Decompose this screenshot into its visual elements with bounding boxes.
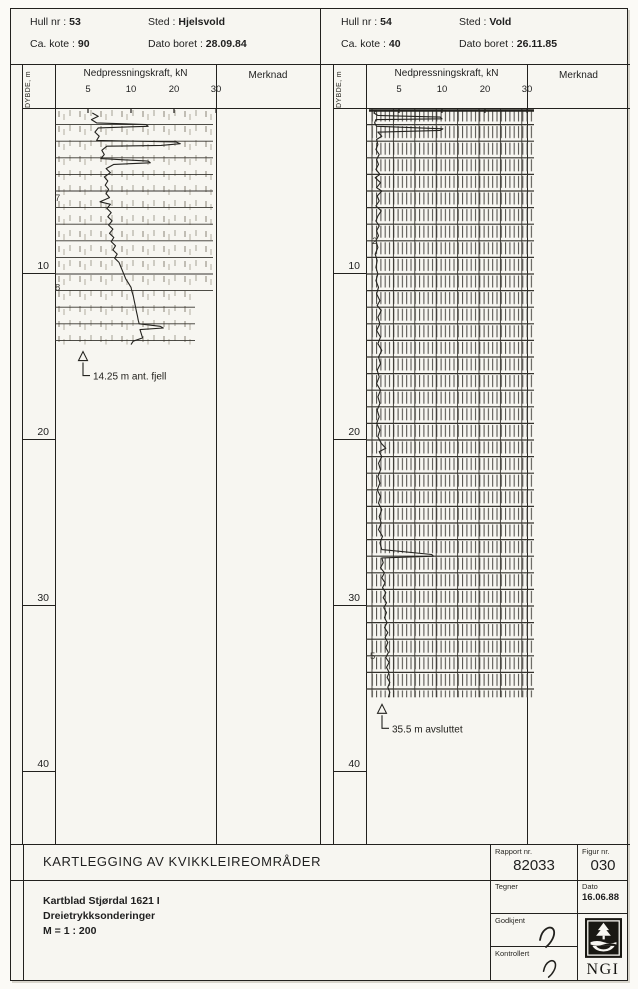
figur-nr-cell: Figur nr. 030	[577, 845, 628, 880]
rapport-nr-cell: Rapport nr. 82033	[490, 845, 577, 880]
dato-label: Dato	[582, 882, 598, 891]
tegner-cell: Tegner	[490, 880, 577, 913]
sted-label: Sted :	[459, 16, 486, 28]
merknad-column-label: Merknad	[216, 70, 320, 81]
svg-text:8: 8	[55, 283, 60, 294]
kontrollert-label: Kontrollert	[495, 949, 529, 958]
rapport-nr-value: 82033	[491, 857, 577, 874]
force-tick-label: 10	[126, 84, 137, 95]
depth-tick-label: 10	[37, 260, 49, 272]
chart-row: 10203040 7814.25 m ant. fjell	[10, 108, 320, 844]
hull-nr-value: 54	[380, 16, 392, 28]
sounding-chart-53: 7814.25 m ant. fjell	[55, 108, 216, 844]
depth-tick-line	[333, 605, 366, 606]
dato-boret-label: Dato boret :	[459, 38, 514, 50]
kote-label: Ca. kote :	[341, 38, 386, 50]
header-row-1: Hull nr : 53 Sted : Hjelsvold	[30, 16, 316, 30]
sted-label: Sted :	[148, 16, 175, 28]
panel-header: Hull nr : 53 Sted : Hjelsvold Ca. kote :…	[10, 8, 320, 65]
map-survey-title: KARTLEGGING AV KVIKKLEIREOMRÅDER	[43, 854, 321, 869]
sted-field: Sted : Hjelsvold	[148, 16, 225, 28]
dato-value: 16.06.88	[582, 892, 619, 903]
dato-cell: Dato 16.06.88	[577, 880, 628, 913]
dato-boret-value: 26.11.85	[517, 38, 557, 50]
scale-line: M = 1 : 200	[43, 924, 160, 939]
depth-tick-label: 30	[348, 592, 360, 604]
force-axis-ticks: 5102030	[366, 84, 527, 98]
kote-field: Ca. kote : 40	[341, 38, 401, 50]
svg-text:7: 7	[55, 193, 60, 204]
depth-tick-label: 10	[348, 260, 360, 272]
dato-boret-field: Dato boret : 28.09.84	[148, 38, 247, 50]
force-axis-ticks: 5102030	[55, 84, 216, 98]
chart-row: 10203040 2535.5 m avsluttet	[321, 108, 630, 844]
dato-boret-field: Dato boret : 26.11.85	[459, 38, 557, 50]
ngi-logo-cell: NGI	[577, 913, 628, 981]
title-block: KARTLEGGING AV KVIKKLEIREOMRÅDER Rapport…	[10, 845, 628, 981]
hull-nr-label: Hull nr :	[30, 16, 66, 28]
scanned-sounding-log-page: Hull nr : 53 Sted : Hjelsvold Ca. kote :…	[0, 0, 638, 989]
merknad-column-label: Merknad	[527, 70, 630, 81]
hull-nr-value: 53	[69, 16, 81, 28]
hull-nr-label: Hull nr :	[341, 16, 377, 28]
depth-tick-line	[22, 771, 55, 772]
depth-tick-line	[22, 439, 55, 440]
depth-tick-label: 40	[37, 758, 49, 770]
godkjent-signature	[537, 922, 563, 948]
header-row-2: Ca. kote : 90 Dato boret : 28.09.84	[30, 38, 316, 52]
godkjent-label: Godkjent	[495, 916, 525, 925]
depth-scale-column: 10203040	[333, 108, 366, 844]
sted-value: Vold	[489, 16, 511, 28]
depth-scale-column: 10203040	[22, 108, 55, 844]
sounding-curve-53: 7814.25 m ant. fjell	[55, 108, 216, 845]
svg-text:5: 5	[370, 651, 375, 662]
svg-text:14.25 m ant. fjell: 14.25 m ant. fjell	[93, 372, 166, 383]
depth-tick-line	[333, 439, 366, 440]
svg-text:2: 2	[372, 236, 377, 247]
sted-field: Sted : Vold	[459, 16, 511, 28]
force-tick-label: 5	[85, 84, 90, 95]
sounding-chart-54: 2535.5 m avsluttet	[366, 108, 527, 844]
force-axis-label: Nedpressningskraft, kN	[366, 68, 527, 79]
kote-value: 90	[78, 38, 90, 50]
depth-tick-label: 30	[37, 592, 49, 604]
merknad-cell	[527, 108, 630, 844]
depth-tick-line	[22, 605, 55, 606]
borehole-panel-53: Hull nr : 53 Sted : Hjelsvold Ca. kote :…	[10, 8, 320, 845]
hull-nr-field: Hull nr : 53	[30, 16, 81, 28]
header-row-2: Ca. kote : 40 Dato boret : 26.11.85	[341, 38, 626, 52]
figur-nr-value: 030	[578, 857, 628, 874]
method-line: Dreietrykksonderinger	[43, 909, 160, 924]
dato-boret-value: 28.09.84	[206, 38, 247, 50]
depth-tick-label: 20	[348, 426, 360, 438]
kartblad-line: Kartblad Stjørdal 1621 I	[43, 894, 160, 909]
force-tick-label: 20	[480, 84, 491, 95]
depth-tick-line	[333, 273, 366, 274]
map-sheet-description: Kartblad Stjørdal 1621 I Dreietrykksonde…	[43, 894, 160, 939]
panel-header: Hull nr : 54 Sted : Vold Ca. kote : 40 D…	[321, 8, 630, 65]
force-tick-label: 20	[169, 84, 180, 95]
svg-text:35.5 m avsluttet: 35.5 m avsluttet	[392, 724, 463, 735]
rapport-nr-label: Rapport nr.	[495, 847, 532, 856]
tegner-label: Tegner	[495, 882, 518, 891]
figur-nr-label: Figur nr.	[582, 847, 610, 856]
ngi-tree-emblem-icon	[585, 918, 622, 958]
kote-label: Ca. kote :	[30, 38, 75, 50]
depth-tick-line	[333, 771, 366, 772]
force-axis-label: Nedpressningskraft, kN	[55, 68, 216, 79]
merknad-cell	[216, 108, 320, 844]
depth-axis-label: DYBDE, m	[25, 66, 37, 108]
depth-tick-label: 40	[348, 758, 360, 770]
sted-value: Hjelsvold	[178, 16, 225, 28]
header-row-1: Hull nr : 54 Sted : Vold	[341, 16, 626, 30]
kontrollert-signature	[541, 955, 563, 979]
godkjent-cell: Godkjent	[490, 913, 577, 946]
ngi-logo-text: NGI	[578, 961, 628, 979]
depth-tick-line	[22, 273, 55, 274]
hull-nr-field: Hull nr : 54	[341, 16, 392, 28]
borehole-panel-54: Hull nr : 54 Sted : Vold Ca. kote : 40 D…	[320, 8, 630, 845]
kote-value: 40	[389, 38, 401, 50]
force-tick-label: 10	[437, 84, 448, 95]
sounding-curve-54: 2535.5 m avsluttet	[366, 108, 527, 845]
dato-boret-label: Dato boret :	[148, 38, 203, 50]
kontrollert-cell: Kontrollert	[490, 946, 577, 981]
depth-axis-label: DYBDE, m	[336, 66, 348, 108]
force-tick-label: 5	[396, 84, 401, 95]
kote-field: Ca. kote : 90	[30, 38, 90, 50]
depth-tick-label: 20	[37, 426, 49, 438]
